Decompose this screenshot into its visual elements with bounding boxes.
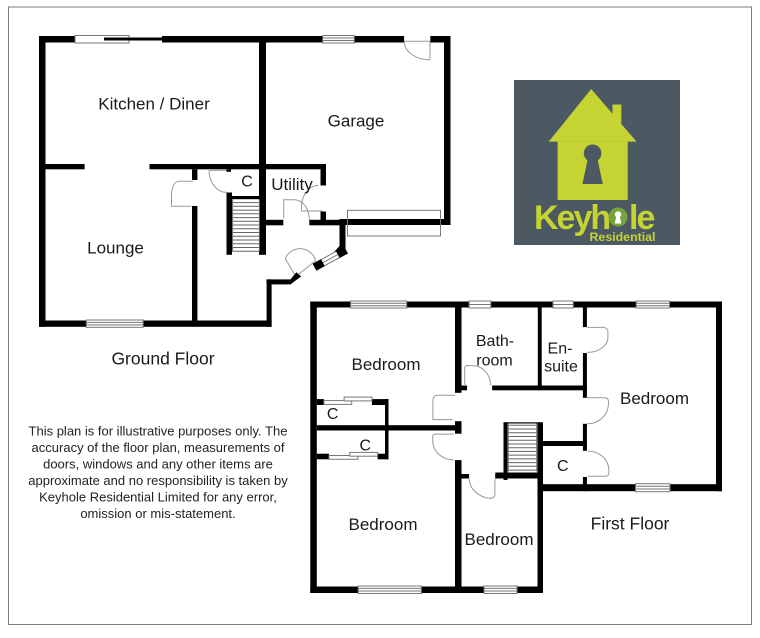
svg-text:room: room [476, 353, 512, 370]
svg-text:Bedroom: Bedroom [465, 530, 534, 549]
svg-text:C: C [327, 406, 339, 423]
svg-text:suite: suite [544, 359, 578, 376]
svg-text:This plan is for illustrative: This plan is for illustrative purposes o… [29, 424, 288, 439]
svg-text:C: C [557, 458, 569, 475]
svg-text:Utility: Utility [271, 175, 313, 194]
svg-text:Bath-: Bath- [476, 333, 514, 350]
svg-text:Bedroom: Bedroom [620, 389, 689, 408]
svg-text:Garage: Garage [328, 112, 385, 131]
svg-text:approximate and no responsibil: approximate and no responsibility is tak… [28, 473, 288, 488]
svg-text:En-: En- [548, 341, 573, 358]
svg-text:omission or mis-statement.: omission or mis-statement. [80, 506, 235, 521]
svg-text:doors, windows and any other i: doors, windows and any other items are [43, 457, 273, 472]
svg-text:C: C [241, 174, 253, 191]
svg-text:Residential: Residential [590, 232, 656, 244]
svg-text:Kitchen / Diner: Kitchen / Diner [98, 95, 210, 114]
svg-text:Lounge: Lounge [87, 239, 144, 258]
svg-text:First Floor: First Floor [591, 514, 670, 534]
svg-text:Bedroom: Bedroom [349, 515, 418, 534]
svg-text:Bedroom: Bedroom [352, 355, 421, 374]
svg-text:C: C [360, 438, 372, 455]
svg-text:Ground Floor: Ground Floor [111, 349, 214, 369]
svg-text:accuracy of the floor plan, me: accuracy of the floor plan, measurements… [32, 440, 285, 455]
svg-text:Keyhole Residential Limited fo: Keyhole Residential Limited for any erro… [39, 490, 277, 505]
